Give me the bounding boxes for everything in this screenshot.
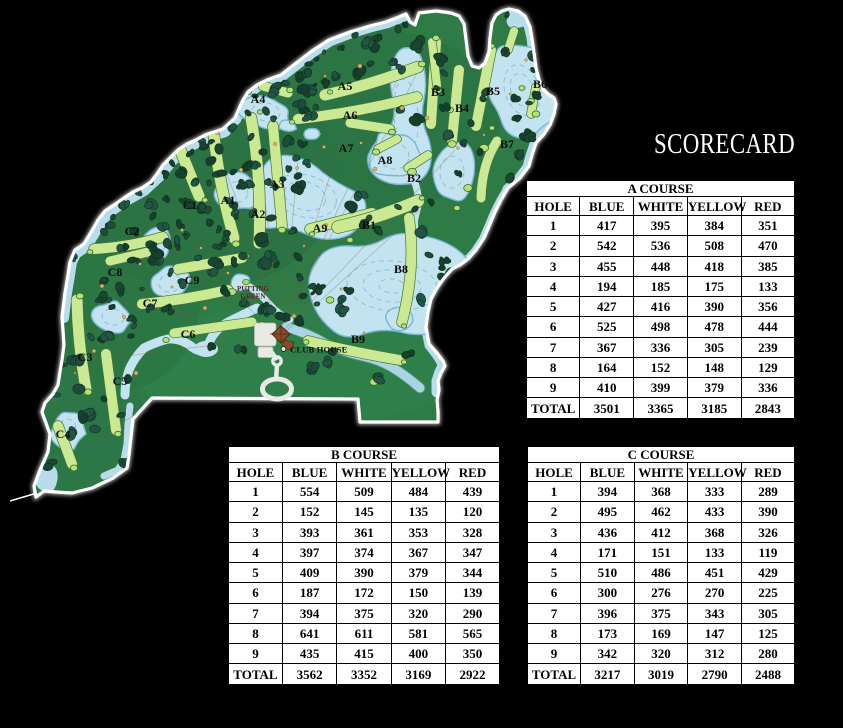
- svg-text:A6: A6: [343, 108, 358, 122]
- svg-text:A5: A5: [338, 79, 353, 93]
- svg-text:B6: B6: [533, 77, 547, 91]
- svg-text:B3: B3: [431, 85, 445, 99]
- svg-text:B1: B1: [362, 218, 376, 232]
- svg-text:C1: C1: [183, 198, 198, 212]
- svg-text:A7: A7: [339, 141, 354, 155]
- svg-text:B9: B9: [351, 332, 365, 346]
- svg-text:C7: C7: [143, 296, 158, 310]
- svg-text:B4: B4: [455, 101, 469, 115]
- svg-text:A2: A2: [251, 207, 266, 221]
- svg-text:C5: C5: [113, 374, 128, 388]
- svg-text:A1: A1: [221, 193, 236, 207]
- svg-text:GREEN: GREEN: [241, 293, 266, 301]
- svg-text:C2: C2: [125, 224, 140, 238]
- svg-text:C4: C4: [56, 427, 71, 441]
- svg-text:C8: C8: [108, 265, 123, 279]
- svg-text:C9: C9: [185, 273, 200, 287]
- svg-text:B5: B5: [486, 84, 500, 98]
- svg-text:C3: C3: [78, 350, 93, 364]
- svg-text:A9: A9: [313, 221, 328, 235]
- svg-text:C6: C6: [181, 327, 196, 341]
- svg-text:B8: B8: [394, 262, 408, 276]
- svg-text:B2: B2: [407, 171, 421, 185]
- svg-text:A3: A3: [270, 177, 285, 191]
- svg-text:B7: B7: [500, 137, 514, 151]
- svg-text:A8: A8: [378, 153, 393, 167]
- svg-text:A4: A4: [251, 92, 266, 106]
- svg-text:CLUB HOUSE: CLUB HOUSE: [290, 345, 348, 355]
